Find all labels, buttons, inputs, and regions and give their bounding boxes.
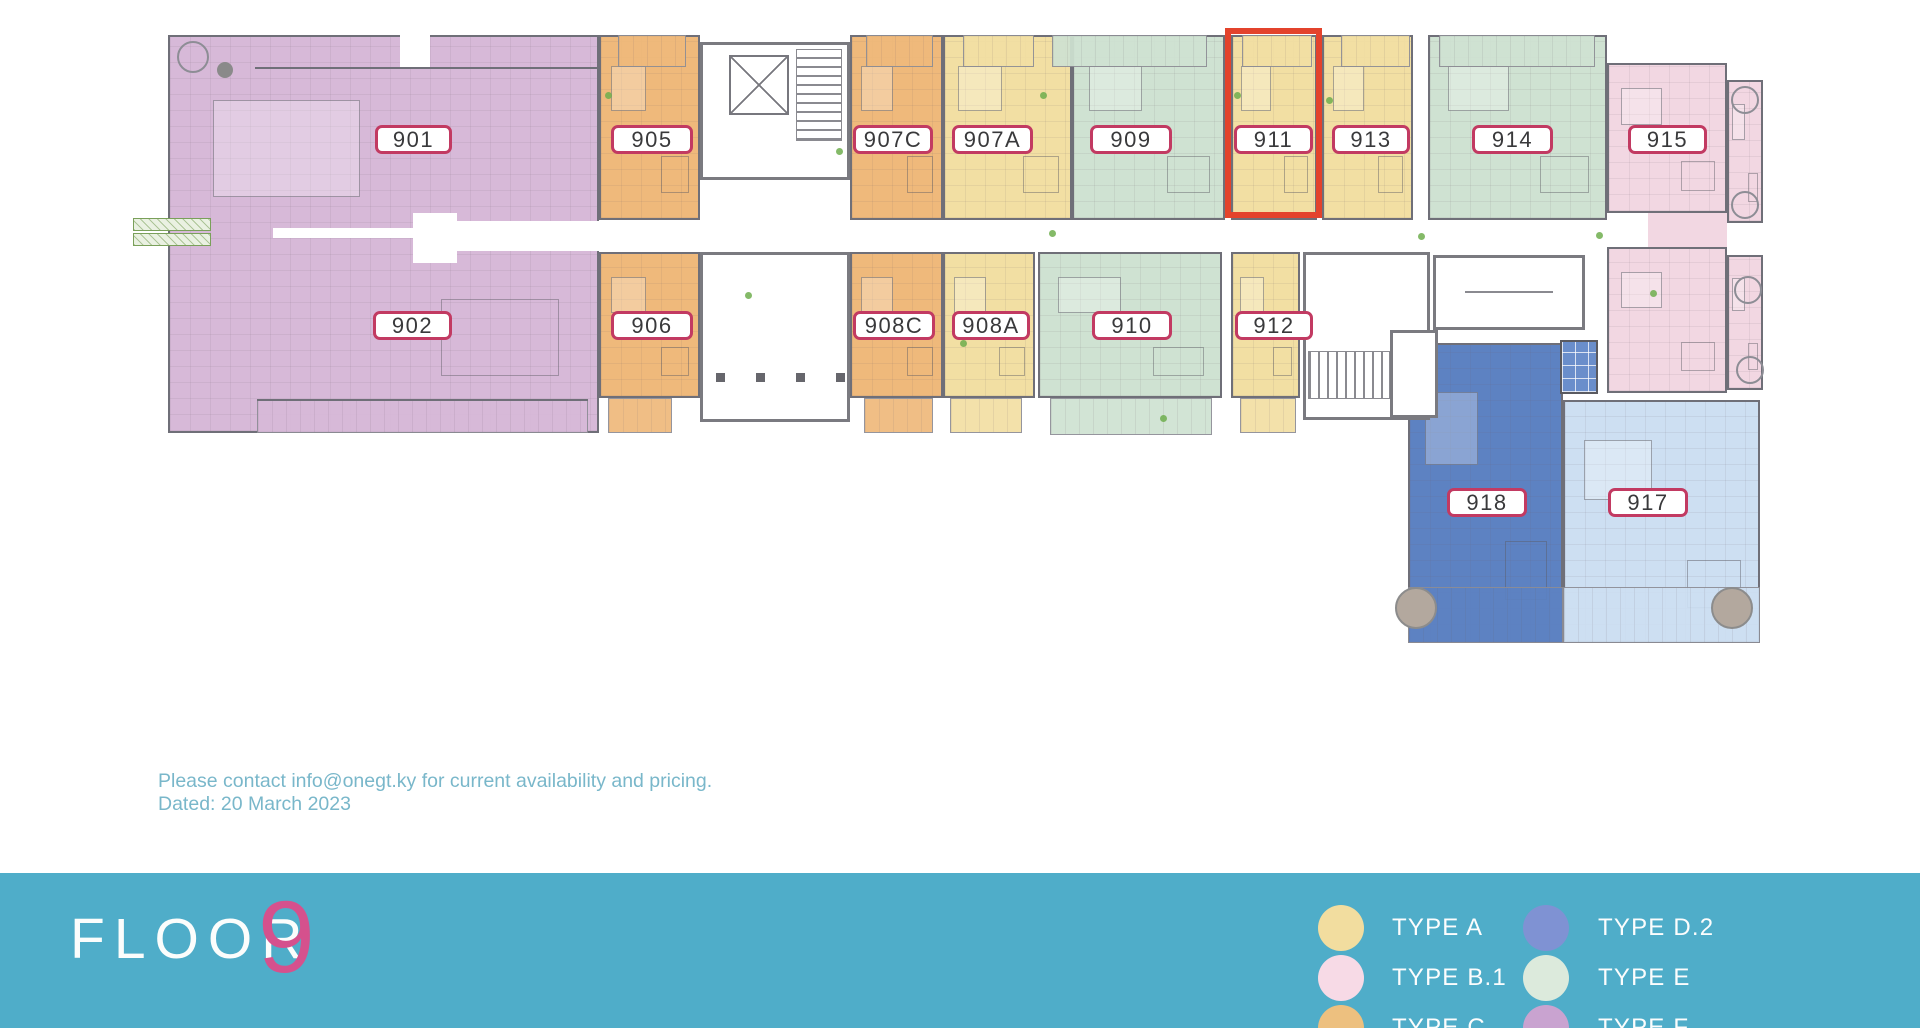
column: [756, 373, 765, 382]
plant-icon: [1049, 230, 1056, 237]
table-icon: [1734, 276, 1762, 304]
unit-label-915[interactable]: 915: [1628, 125, 1707, 154]
corridor-segment: [1648, 213, 1727, 247]
legend-swatch-type-e: [1523, 955, 1569, 1001]
floorplan-page: 901905907C907A909911913914915902906908C9…: [0, 0, 1920, 1028]
unit-label-908A[interactable]: 908A: [952, 311, 1030, 340]
unit-label-908C[interactable]: 908C: [853, 311, 935, 340]
legend-label: TYPE C: [1392, 1014, 1486, 1028]
wall-line: [255, 67, 599, 69]
table-icon: [1736, 356, 1764, 384]
selected-unit-highlight: [1225, 28, 1322, 218]
availability-notice: Please contact info@onegt.ky for current…: [158, 770, 712, 816]
column: [716, 373, 725, 382]
planter-circle: [1395, 587, 1437, 629]
legend-swatch-type-c: [1318, 1005, 1364, 1028]
footer-bar: FLOOR 9 TYPE ATYPE B.1TYPE CTYPE D.2TYPE…: [0, 873, 1920, 1028]
legend-label: TYPE A: [1392, 914, 1483, 942]
balcony-913: [1341, 35, 1410, 67]
corridor-segment: [400, 35, 430, 68]
planter-circle: [1711, 587, 1753, 629]
floor-plan-canvas: 901905907C907A909911913914915902906908C9…: [0, 0, 1920, 700]
plant-icon: [960, 340, 967, 347]
balcony-908A: [950, 398, 1022, 433]
dated-line: Dated: 20 March 2023: [158, 793, 712, 816]
balcony-906: [608, 398, 672, 433]
plant-icon: [1040, 92, 1047, 99]
contact-line: Please contact info@onegt.ky for current…: [158, 770, 712, 793]
plant-icon: [836, 148, 843, 155]
plant-icon: [1596, 232, 1603, 239]
legend-swatch-type-a: [1318, 905, 1364, 951]
unit-label-907A[interactable]: 907A: [952, 125, 1033, 154]
legend-swatch-type-d-2: [1523, 905, 1569, 951]
unit-label-905[interactable]: 905: [611, 125, 693, 154]
plant-icon: [1326, 97, 1333, 104]
floor-number: 9: [258, 891, 315, 985]
table-icon: [1731, 86, 1759, 114]
balcony-909: [1052, 35, 1207, 67]
planter-box: [133, 218, 211, 231]
stairs-icon: [1308, 351, 1390, 399]
plant-icon: [605, 92, 612, 99]
unit-label-907C[interactable]: 907C: [853, 125, 933, 154]
lobby: [700, 252, 850, 422]
balcony-912: [1240, 398, 1296, 433]
plant-icon: [745, 292, 752, 299]
table-icon: [1731, 191, 1759, 219]
balcony-914: [1439, 35, 1595, 67]
unit-label-910[interactable]: 910: [1092, 311, 1172, 340]
plant-icon: [1418, 233, 1425, 240]
balcony-902: [257, 400, 588, 433]
corridor-segment: [273, 228, 413, 238]
unit-label-902[interactable]: 902: [373, 311, 452, 340]
balcony-907A: [963, 35, 1034, 67]
unit-label-911[interactable]: 911: [1234, 125, 1313, 154]
wall-line: [257, 399, 588, 401]
unit-label-912[interactable]: 912: [1235, 311, 1313, 340]
balcony-905: [618, 35, 686, 67]
unit-label-917[interactable]: 917: [1608, 488, 1688, 517]
legend-swatch-type-b-1: [1318, 955, 1364, 1001]
table-line: [1465, 291, 1553, 293]
amenity-room: [1433, 255, 1585, 330]
hall: [1390, 330, 1438, 418]
plant-icon: [1650, 290, 1657, 297]
table-icon: [177, 41, 209, 73]
column: [796, 373, 805, 382]
unit-label-918[interactable]: 918: [1447, 488, 1527, 517]
legend-label: TYPE E: [1598, 964, 1691, 992]
legend-label: TYPE D.2: [1598, 914, 1714, 942]
legend-swatch-type-f: [1523, 1005, 1569, 1028]
stairs-icon: [796, 49, 842, 141]
balcony-910: [1050, 398, 1212, 435]
pool: [1560, 340, 1598, 394]
balcony-907C: [866, 35, 933, 67]
corridor-segment: [450, 221, 599, 251]
balcony-908C: [864, 398, 933, 433]
legend-label: TYPE B.1: [1392, 964, 1507, 992]
unit-label-906[interactable]: 906: [611, 311, 693, 340]
legend-label: TYPE F: [1598, 1014, 1689, 1028]
unit-label-901[interactable]: 901: [375, 125, 452, 154]
unit-label-909[interactable]: 909: [1090, 125, 1172, 154]
elevator-shaft-icon: [729, 55, 789, 115]
column: [836, 373, 845, 382]
plant-icon: [1160, 415, 1167, 422]
unit-label-913[interactable]: 913: [1332, 125, 1410, 154]
stair-elevator-core: [700, 42, 850, 180]
unit-916-area[interactable]: [1607, 247, 1727, 393]
unit-label-914[interactable]: 914: [1472, 125, 1553, 154]
planter-box: [133, 233, 211, 246]
planter-circle: [217, 62, 233, 78]
